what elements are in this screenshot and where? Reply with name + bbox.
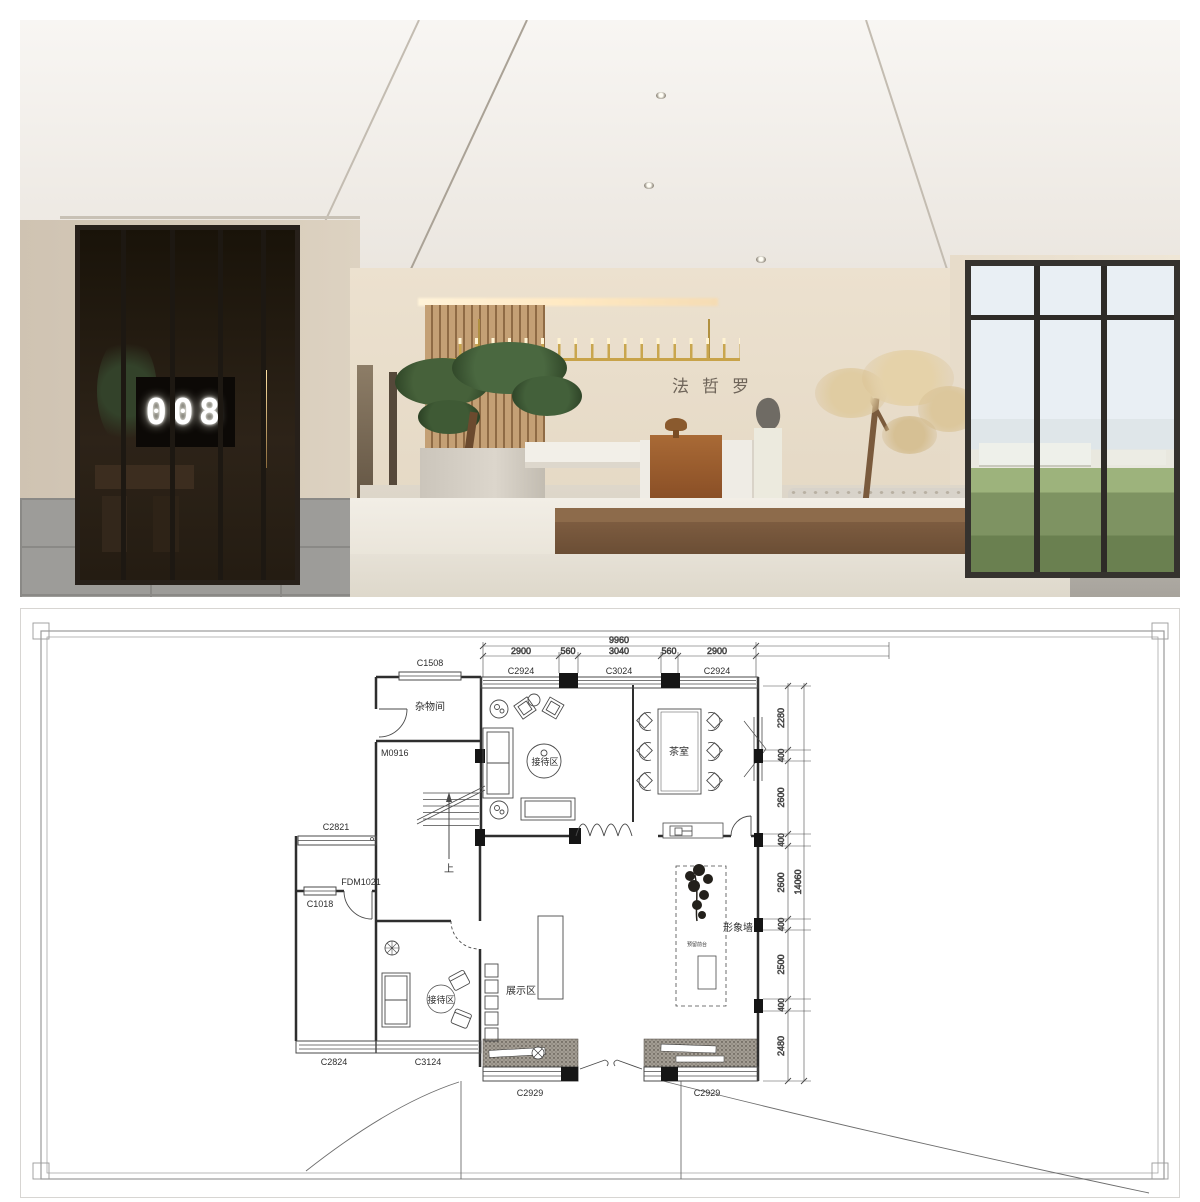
room-label-display-area: 展示区 (506, 985, 536, 997)
feature-wall-zone (676, 864, 726, 1006)
window-label: C2929 (517, 1088, 544, 1098)
mullion (218, 230, 223, 580)
lower-reception-furniture (382, 941, 472, 1029)
dim-segment: 2280 (776, 708, 786, 728)
staircase (417, 786, 485, 859)
desk-wood-panel (650, 435, 722, 499)
dim-segment: 2900 (707, 646, 727, 656)
door-m0916 (379, 709, 407, 737)
downlight (756, 256, 766, 263)
display-area-fixtures (485, 916, 563, 1041)
door-label: M0916 (381, 748, 409, 758)
wall-sign: 法哲罗 (672, 372, 762, 397)
dim-segment: 2900 (511, 646, 531, 656)
dim-segment: 400 (777, 998, 786, 1012)
glass-partition: 008 (75, 225, 300, 585)
sheet-border (33, 623, 1168, 1179)
window-label: C3124 (415, 1057, 442, 1067)
dim-total-height: 14060 (793, 869, 803, 894)
window-mullion (1101, 266, 1107, 572)
distant-building (1105, 450, 1166, 465)
windows-c2824-c3124 (296, 1041, 481, 1053)
room-label-reception-lower: 接待区 (427, 994, 454, 1005)
downlight (656, 92, 666, 99)
window-c1018 (304, 887, 336, 895)
curtain-wall (965, 260, 1180, 578)
dim-segment: 2480 (776, 1036, 786, 1056)
sculpture-plinth (754, 428, 782, 500)
door-fdm1021 (344, 891, 372, 919)
label-stair-up: 上 (444, 863, 454, 875)
folding-doors (576, 824, 632, 836)
window-label: C2821 (323, 822, 350, 832)
dim-segment: 2600 (776, 872, 786, 892)
door-tea-room (731, 816, 751, 836)
window-transom (971, 315, 1174, 320)
door-label: FDM1021 (341, 877, 381, 887)
dim-segment: 400 (777, 833, 786, 847)
platform-front (350, 554, 1070, 597)
design-sheet: { "render": { "door_number": "008", "wal… (0, 0, 1200, 1200)
windows-c2929 (483, 1067, 758, 1081)
room-label-tea-room: 茶室 (669, 745, 689, 758)
right-dimension-chain: 2280 400 2600 400 2600 400 2500 400 2480… (763, 683, 811, 1084)
columns (475, 673, 763, 1081)
window-c2821 (298, 836, 376, 845)
floor-plan-sheet: 9960 2900 560 3040 560 2900 2280 400 260… (20, 608, 1180, 1198)
wall-cabinet (663, 823, 723, 838)
upper-reception-furniture (483, 694, 575, 820)
window-c1508 (399, 672, 461, 680)
window-label: C2824 (321, 1057, 348, 1067)
bonsai-foliage (512, 376, 582, 416)
floor-plan-drawing: 9960 2900 560 3040 560 2900 2280 400 260… (21, 609, 1179, 1197)
room-labels: 杂物间 接待区 茶室 展示区 接待区 形象墙 预留前台 上 (415, 700, 753, 1005)
tea-table (95, 465, 194, 490)
site-path-arcs (306, 1081, 1149, 1193)
entrance-planting-beds (483, 1039, 758, 1067)
ceiling-recess-line (60, 216, 360, 219)
door-number: 008 (145, 392, 225, 433)
mullion (170, 230, 175, 580)
dried-foliage (882, 416, 937, 454)
window-label: C2924 (704, 666, 731, 676)
bowl-stem (673, 430, 679, 438)
window-label: C2924 (508, 666, 535, 676)
plan-tree-symbol (685, 864, 713, 919)
dim-segment: 400 (777, 748, 786, 762)
dim-total-width: 9960 (609, 635, 629, 645)
mullion (121, 230, 126, 580)
entrance-swing-marks (580, 1060, 642, 1069)
dim-segment: 560 (560, 646, 575, 656)
room-label-reception-upper: 接待区 (531, 756, 558, 767)
dim-segment: 400 (777, 917, 786, 931)
opening-labels: C2924 C3024 C2924 C1508 M0916 C2821 FDM1… (307, 658, 731, 1098)
top-dimension-chain: 9960 2900 560 3040 560 2900 (480, 635, 889, 677)
dim-segment: 2500 (776, 954, 786, 974)
window-label: C2929 (694, 1088, 721, 1098)
window-label: C3024 (606, 666, 633, 676)
door-lower-reception (451, 921, 479, 949)
room-label-feature-wall: 形象墙 (723, 921, 753, 934)
dim-segment: 560 (661, 646, 676, 656)
label-reserved-counter: 预留前台 (687, 941, 707, 948)
dim-segment: 3040 (609, 646, 629, 656)
interior-render: 008 法哲罗 (20, 20, 1180, 597)
window-label: C1508 (417, 658, 444, 668)
mullion (261, 230, 266, 580)
room-label-storage: 杂物间 (415, 700, 445, 713)
window-mullion (1034, 266, 1040, 572)
window-label: C1018 (307, 899, 334, 909)
dim-segment: 2600 (776, 787, 786, 807)
downlight (644, 182, 654, 189)
